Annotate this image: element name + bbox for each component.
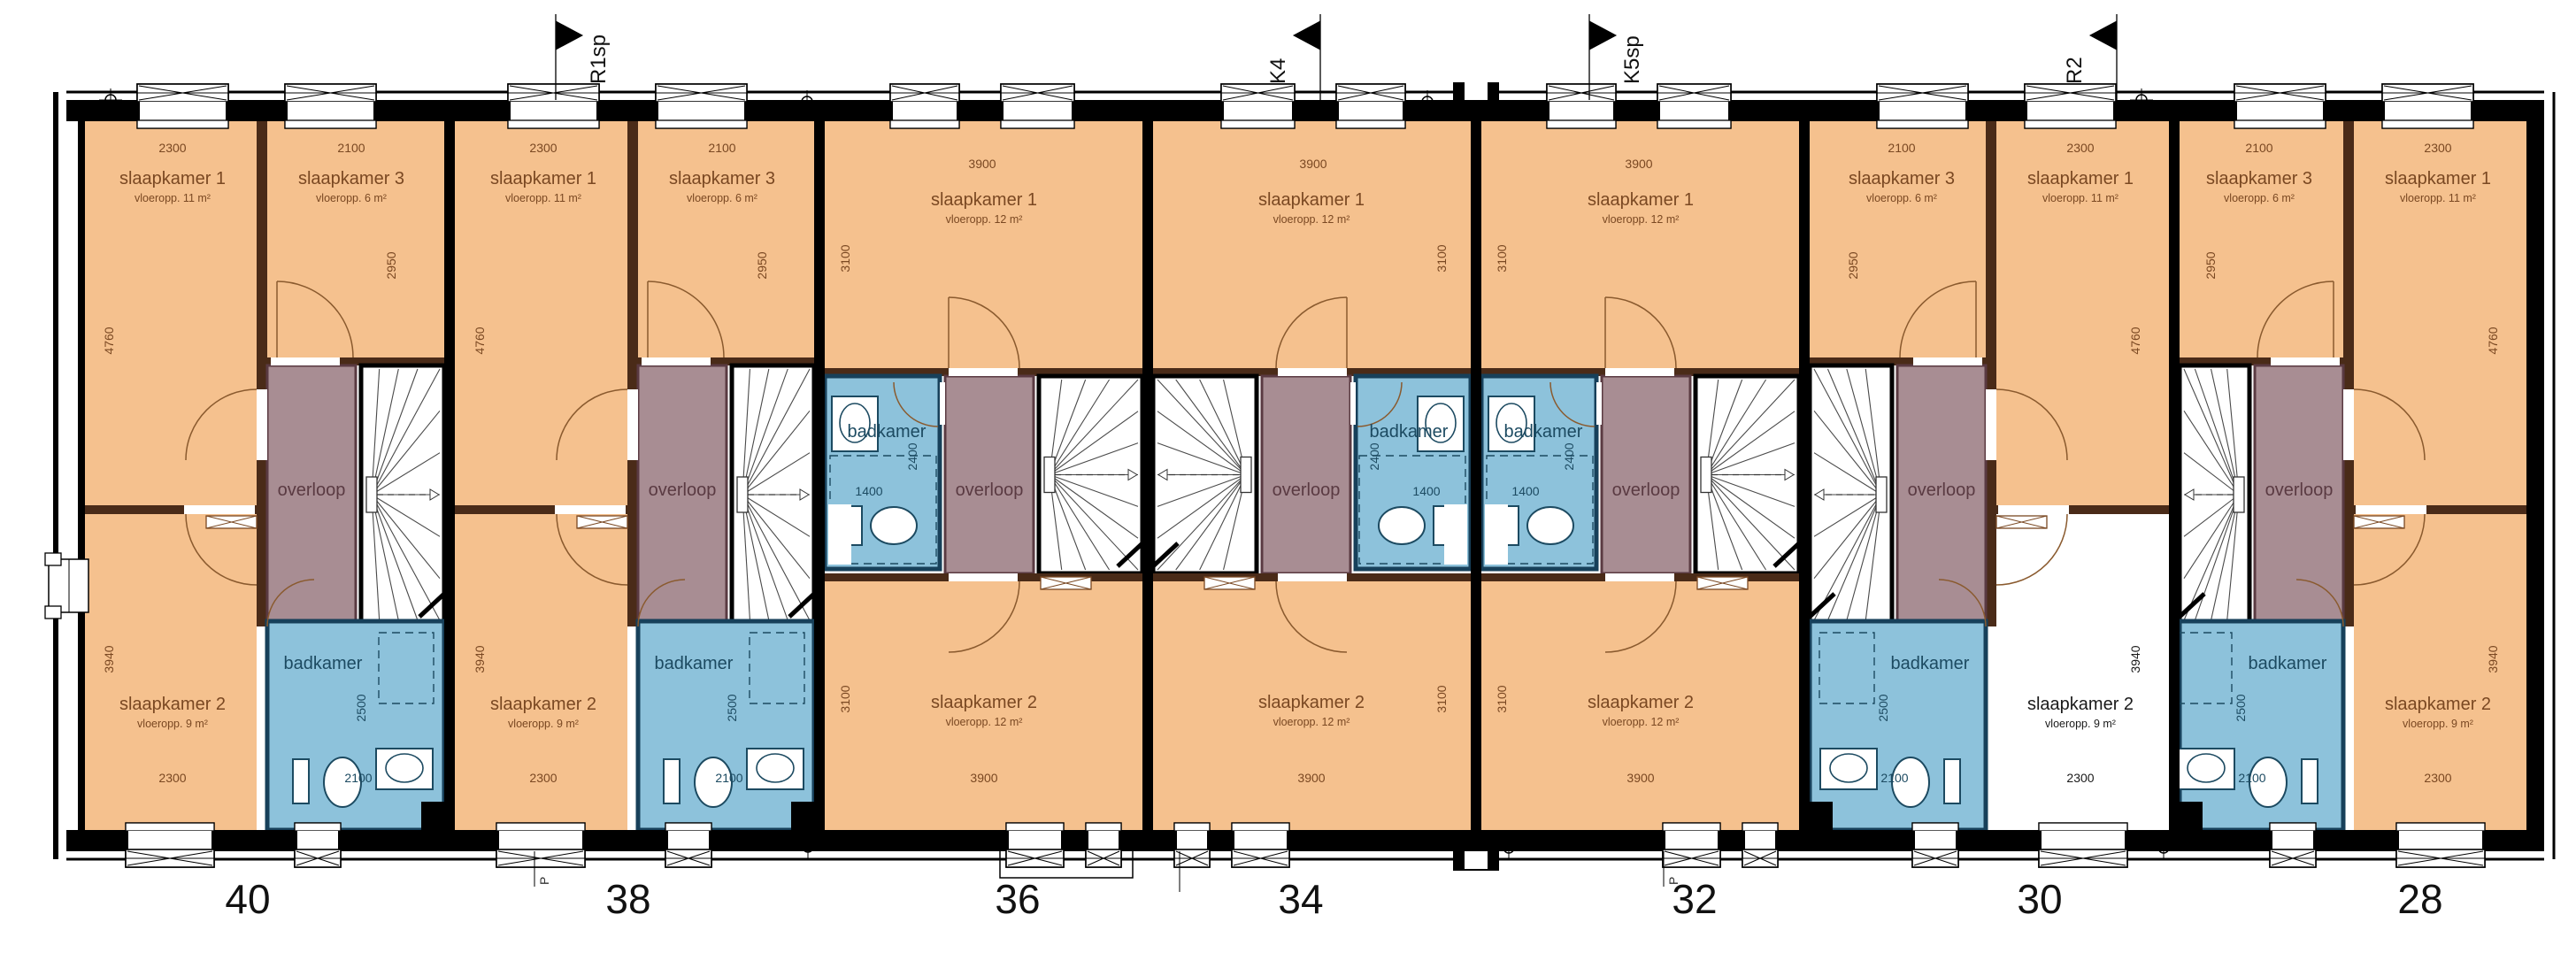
window-sill — [2270, 823, 2316, 831]
dim-label: 1400 — [1511, 484, 1539, 498]
room-area: vloeropp. 9 m² — [137, 718, 208, 730]
exterior-wall-top — [66, 100, 2544, 121]
dim-label: 2300 — [2066, 141, 2094, 155]
door-gap — [1986, 389, 1996, 460]
dim-label: 3940 — [2486, 645, 2500, 672]
room-label: overloop — [956, 480, 1024, 500]
dim-label: 3100 — [1495, 244, 1509, 272]
dim-label: 1400 — [1412, 484, 1440, 498]
window-gap — [2385, 102, 2471, 120]
dim-label: 3100 — [838, 685, 852, 712]
door-gap — [1278, 573, 1347, 581]
dim-label: 3100 — [1434, 244, 1449, 272]
dim-label: 2400 — [905, 442, 919, 470]
dim-label: 3900 — [1625, 157, 1652, 171]
dim-label: 4760 — [2486, 327, 2500, 354]
dim-label: 3900 — [968, 157, 996, 171]
section-marker-label: K4 — [1266, 58, 1290, 84]
inner-wall — [627, 121, 638, 626]
door-gap — [1605, 368, 1674, 376]
dim-label: 2100 — [708, 141, 735, 155]
door-gap — [2343, 389, 2354, 460]
exterior-wall-left — [53, 92, 58, 859]
dim-label: 2400 — [1367, 442, 1381, 470]
dim-label: 3900 — [1626, 771, 1654, 785]
dim-label: 2300 — [158, 141, 186, 155]
room-area: vloeropp. 9 m² — [2045, 718, 2116, 730]
room-area: vloeropp. 12 m² — [1603, 213, 1680, 226]
door-gap — [555, 505, 626, 514]
room-label: slaapkamer 3 — [2206, 169, 2312, 188]
unit-number: 28 — [2397, 876, 2442, 922]
washbasin-fixture — [1820, 749, 1877, 789]
window-sill — [1742, 823, 1778, 831]
window-sill — [1547, 120, 1616, 128]
room-label: slaapkamer 3 — [1849, 169, 1955, 188]
window-gap — [499, 831, 582, 849]
door-gap — [940, 382, 945, 425]
floor-plan-canvas: slaapkamer 1vloeropp. 11 m²23004760slaap… — [0, 0, 2576, 953]
duct-block — [1810, 802, 1833, 830]
window-gap — [668, 831, 709, 849]
window-sill — [2025, 120, 2116, 128]
dim-label: 3900 — [1299, 157, 1326, 171]
room-label: slaapkamer 2 — [2027, 695, 2134, 714]
dim-label: 3100 — [1434, 685, 1449, 712]
dim-label: 3940 — [2128, 645, 2142, 672]
toilet-fixture — [293, 759, 309, 803]
room-slaapkamer-3 — [1810, 121, 1986, 357]
window-gap — [1224, 102, 1292, 120]
window-gap — [2237, 102, 2323, 120]
room-label: slaapkamer 1 — [2027, 169, 2134, 188]
unit-number: 38 — [605, 876, 650, 922]
dim-label: 2100 — [344, 771, 372, 785]
window-sill — [1221, 120, 1295, 128]
party-wall — [444, 121, 455, 830]
room-area: vloeropp. 6 m² — [687, 192, 757, 204]
stair-newel — [737, 477, 748, 512]
room-overloop — [1602, 376, 1690, 573]
unit-number: 40 — [225, 876, 270, 922]
door-gap — [271, 357, 340, 365]
window-sill — [2396, 823, 2485, 831]
window-sill — [665, 823, 711, 831]
door-gap — [2271, 357, 2340, 365]
toilet-fixture — [2302, 759, 2318, 803]
window-gap — [1880, 102, 1965, 120]
room-overloop — [945, 376, 1034, 573]
room-overloop — [1262, 376, 1350, 573]
room-label: overloop — [1612, 480, 1680, 500]
room-label: badkamer — [1891, 654, 1970, 673]
dim-label: 4760 — [473, 327, 487, 354]
room-area: vloeropp. 6 m² — [316, 192, 387, 204]
window-gap — [1177, 831, 1207, 849]
dim-label: 2100 — [2238, 771, 2265, 785]
door-gap — [1998, 505, 2069, 514]
dim-label: 4760 — [2128, 327, 2142, 354]
window-gap — [658, 102, 744, 120]
stair-newel — [366, 477, 377, 512]
room-label: badkamer — [848, 422, 927, 442]
window-sill — [2382, 120, 2473, 128]
joint-notch-top — [1465, 82, 1488, 100]
dim-label: 2300 — [2424, 771, 2451, 785]
joint-notch-bottom — [1465, 851, 1488, 869]
window-sill — [285, 120, 376, 128]
window-gap — [1915, 831, 1956, 849]
dim-label: 2400 — [1562, 442, 1576, 470]
dim-label: 2950 — [1846, 251, 1860, 279]
window-sill — [1006, 823, 1064, 831]
window-gap — [1549, 102, 1613, 120]
window-gap — [1660, 102, 1728, 120]
room-label: overloop — [2265, 480, 2334, 500]
room-label: badkamer — [655, 654, 734, 673]
room-label: slaapkamer 1 — [1258, 190, 1365, 210]
toilet-fixture — [1944, 759, 1960, 803]
window-gap — [288, 102, 373, 120]
window-gap — [2042, 831, 2125, 849]
room-label: slaapkamer 1 — [490, 169, 596, 188]
window-gap — [2399, 831, 2482, 849]
washbasin-fixture — [376, 749, 433, 789]
dim-label: 2500 — [725, 694, 739, 721]
shower-tray — [1444, 504, 1467, 565]
duct-block — [2180, 802, 2203, 830]
inner-wall — [2343, 121, 2354, 626]
dim-label: 3100 — [838, 244, 852, 272]
exterior-wall-right — [2526, 100, 2544, 851]
room-area: vloeropp. 12 m² — [946, 213, 1023, 226]
floor-plan: slaapkamer 1vloeropp. 11 m²23004760slaap… — [0, 0, 2576, 953]
window-sill — [1232, 823, 1289, 831]
room-area: vloeropp. 11 m² — [135, 192, 211, 204]
room-label: badkamer — [1370, 422, 1449, 442]
dim-label: 2300 — [529, 141, 557, 155]
room-label: slaapkamer 3 — [298, 169, 404, 188]
party-wall — [2169, 121, 2180, 830]
room-label: slaapkamer 1 — [1588, 190, 1694, 210]
window-gap — [1088, 831, 1119, 849]
door-gap — [1596, 382, 1602, 425]
window-sill — [1663, 823, 1720, 831]
dim-label: 2300 — [158, 771, 186, 785]
window-gap — [1234, 831, 1287, 849]
window-sill — [295, 823, 341, 831]
window-sill — [126, 823, 214, 831]
door-gap — [257, 389, 267, 460]
window-sill — [1912, 823, 1958, 831]
room-label: overloop — [1273, 480, 1341, 500]
room-area: vloeropp. 9 m² — [2403, 718, 2473, 730]
room-label: badkamer — [1504, 422, 1583, 442]
party-wall — [1471, 121, 1481, 830]
dim-label: 3940 — [102, 645, 116, 672]
stair-newel — [2234, 477, 2244, 512]
window-sill — [1001, 120, 1074, 128]
room-label: slaapkamer 2 — [119, 695, 226, 714]
door-gap — [1278, 368, 1347, 376]
duct-block — [421, 802, 444, 830]
window-gap — [1003, 102, 1072, 120]
room-label: slaapkamer 2 — [1258, 693, 1365, 712]
stair-newel — [1876, 477, 1887, 512]
room-area: vloeropp. 12 m² — [1273, 213, 1350, 226]
window-sill — [508, 120, 599, 128]
door-gap — [949, 573, 1018, 581]
dim-label: 2100 — [1888, 141, 1915, 155]
room-slaapkamer-3 — [2180, 121, 2343, 357]
dim-label: 2100 — [715, 771, 742, 785]
dim-label: 2100 — [1880, 771, 1908, 785]
party-wall — [1799, 121, 1810, 830]
window-gap — [128, 831, 211, 849]
door-gap — [627, 389, 638, 460]
stair-newel — [1241, 457, 1251, 493]
unit-number: 32 — [1672, 876, 1717, 922]
dim-label: 2300 — [2066, 771, 2094, 785]
room-area: vloeropp. 12 m² — [946, 716, 1023, 728]
dim-label: 3100 — [1495, 685, 1509, 712]
window-gap — [2027, 102, 2113, 120]
room-label: slaapkamer 1 — [119, 169, 226, 188]
door-gap — [1605, 573, 1674, 581]
dim-label: 2100 — [2245, 141, 2272, 155]
window-gap — [297, 831, 338, 849]
toilet-fixture — [1527, 507, 1573, 544]
inner-wall — [257, 121, 267, 626]
window-sill — [1336, 120, 1405, 128]
unit-number: 36 — [995, 876, 1040, 922]
exterior-wall-left — [78, 100, 85, 851]
dim-label: 2300 — [2424, 141, 2451, 155]
stair-newel — [1044, 457, 1055, 493]
dim-label: 2950 — [384, 251, 398, 279]
room-label: overloop — [278, 480, 346, 500]
unit-number: 30 — [2017, 876, 2062, 922]
dim-label: 2950 — [2203, 251, 2218, 279]
duct-block — [791, 802, 814, 830]
window-sill — [656, 120, 747, 128]
room-area: vloeropp. 6 m² — [2224, 192, 2295, 204]
window-sill — [1657, 120, 1731, 128]
window-gap — [511, 102, 596, 120]
door-gap — [1913, 357, 1982, 365]
window-west — [45, 606, 61, 619]
window-sill — [890, 120, 959, 128]
p-mark-label: P — [537, 877, 551, 885]
room-label: badkamer — [2249, 654, 2327, 673]
dim-label: 4760 — [102, 327, 116, 354]
window-sill — [496, 823, 585, 831]
window-gap — [140, 102, 226, 120]
room-slaapkamer-3 — [638, 121, 814, 357]
window-sill — [1086, 823, 1121, 831]
washbasin-fixture — [747, 749, 804, 789]
window-sill — [1877, 120, 1968, 128]
dim-label: 2500 — [2234, 694, 2248, 721]
toilet-fixture — [1379, 507, 1425, 544]
party-wall — [1142, 121, 1153, 830]
section-marker-label: R1sp — [587, 35, 611, 84]
section-marker-label: R2 — [2063, 57, 2087, 84]
room-area: vloeropp. 11 m² — [2042, 192, 2118, 204]
dim-label: 2500 — [1876, 694, 1890, 721]
dim-label: 2500 — [354, 694, 368, 721]
dim-label: 2100 — [337, 141, 365, 155]
window-gap — [1745, 831, 1775, 849]
inner-wall — [1986, 121, 1996, 626]
toilet-fixture — [664, 759, 680, 803]
room-label: badkamer — [284, 654, 363, 673]
window-west — [45, 553, 61, 565]
window-gap — [1665, 831, 1718, 849]
room-label: slaapkamer 2 — [931, 693, 1037, 712]
window-sill — [137, 120, 228, 128]
dim-label: 1400 — [855, 484, 882, 498]
washbasin-fixture — [2178, 749, 2234, 789]
toilet-fixture — [871, 507, 917, 544]
room-area: vloeropp. 11 m² — [505, 192, 581, 204]
room-label: overloop — [1908, 480, 1976, 500]
window-gap — [2272, 831, 2313, 849]
dim-label: 3940 — [473, 645, 487, 672]
door-gap — [642, 357, 711, 365]
window-sill — [2234, 120, 2326, 128]
dim-label: 3900 — [970, 771, 997, 785]
window-gap — [1009, 831, 1061, 849]
window-sill — [1174, 823, 1210, 831]
room-area: vloeropp. 11 m² — [2400, 192, 2476, 204]
room-label: slaapkamer 1 — [931, 190, 1037, 210]
room-label: overloop — [649, 480, 717, 500]
window-gap — [893, 102, 957, 120]
room-area: vloeropp. 12 m² — [1603, 716, 1680, 728]
unit-number: 34 — [1278, 876, 1323, 922]
room-area: vloeropp. 12 m² — [1273, 716, 1350, 728]
room-label: slaapkamer 1 — [2385, 169, 2491, 188]
room-label: slaapkamer 2 — [1588, 693, 1694, 712]
dim-label: 2950 — [755, 251, 769, 279]
dim-label: 2300 — [529, 771, 557, 785]
room-label: slaapkamer 2 — [2385, 695, 2491, 714]
room-label: slaapkamer 3 — [669, 169, 775, 188]
window-sill — [2039, 823, 2127, 831]
shower-tray — [828, 504, 851, 565]
section-marker-label: K5sp — [1620, 35, 1644, 84]
room-slaapkamer-3 — [267, 121, 444, 357]
door-gap — [184, 505, 255, 514]
room-label: slaapkamer 2 — [490, 695, 596, 714]
shower-tray — [1485, 504, 1508, 565]
room-area: vloeropp. 9 m² — [508, 718, 579, 730]
party-wall — [814, 121, 825, 830]
dim-label: 3900 — [1297, 771, 1325, 785]
door-gap — [1350, 382, 1356, 425]
room-area: vloeropp. 6 m² — [1866, 192, 1937, 204]
stair-newel — [1701, 457, 1711, 493]
door-gap — [2356, 505, 2426, 514]
door-gap — [949, 368, 1018, 376]
window-gap — [1339, 102, 1403, 120]
